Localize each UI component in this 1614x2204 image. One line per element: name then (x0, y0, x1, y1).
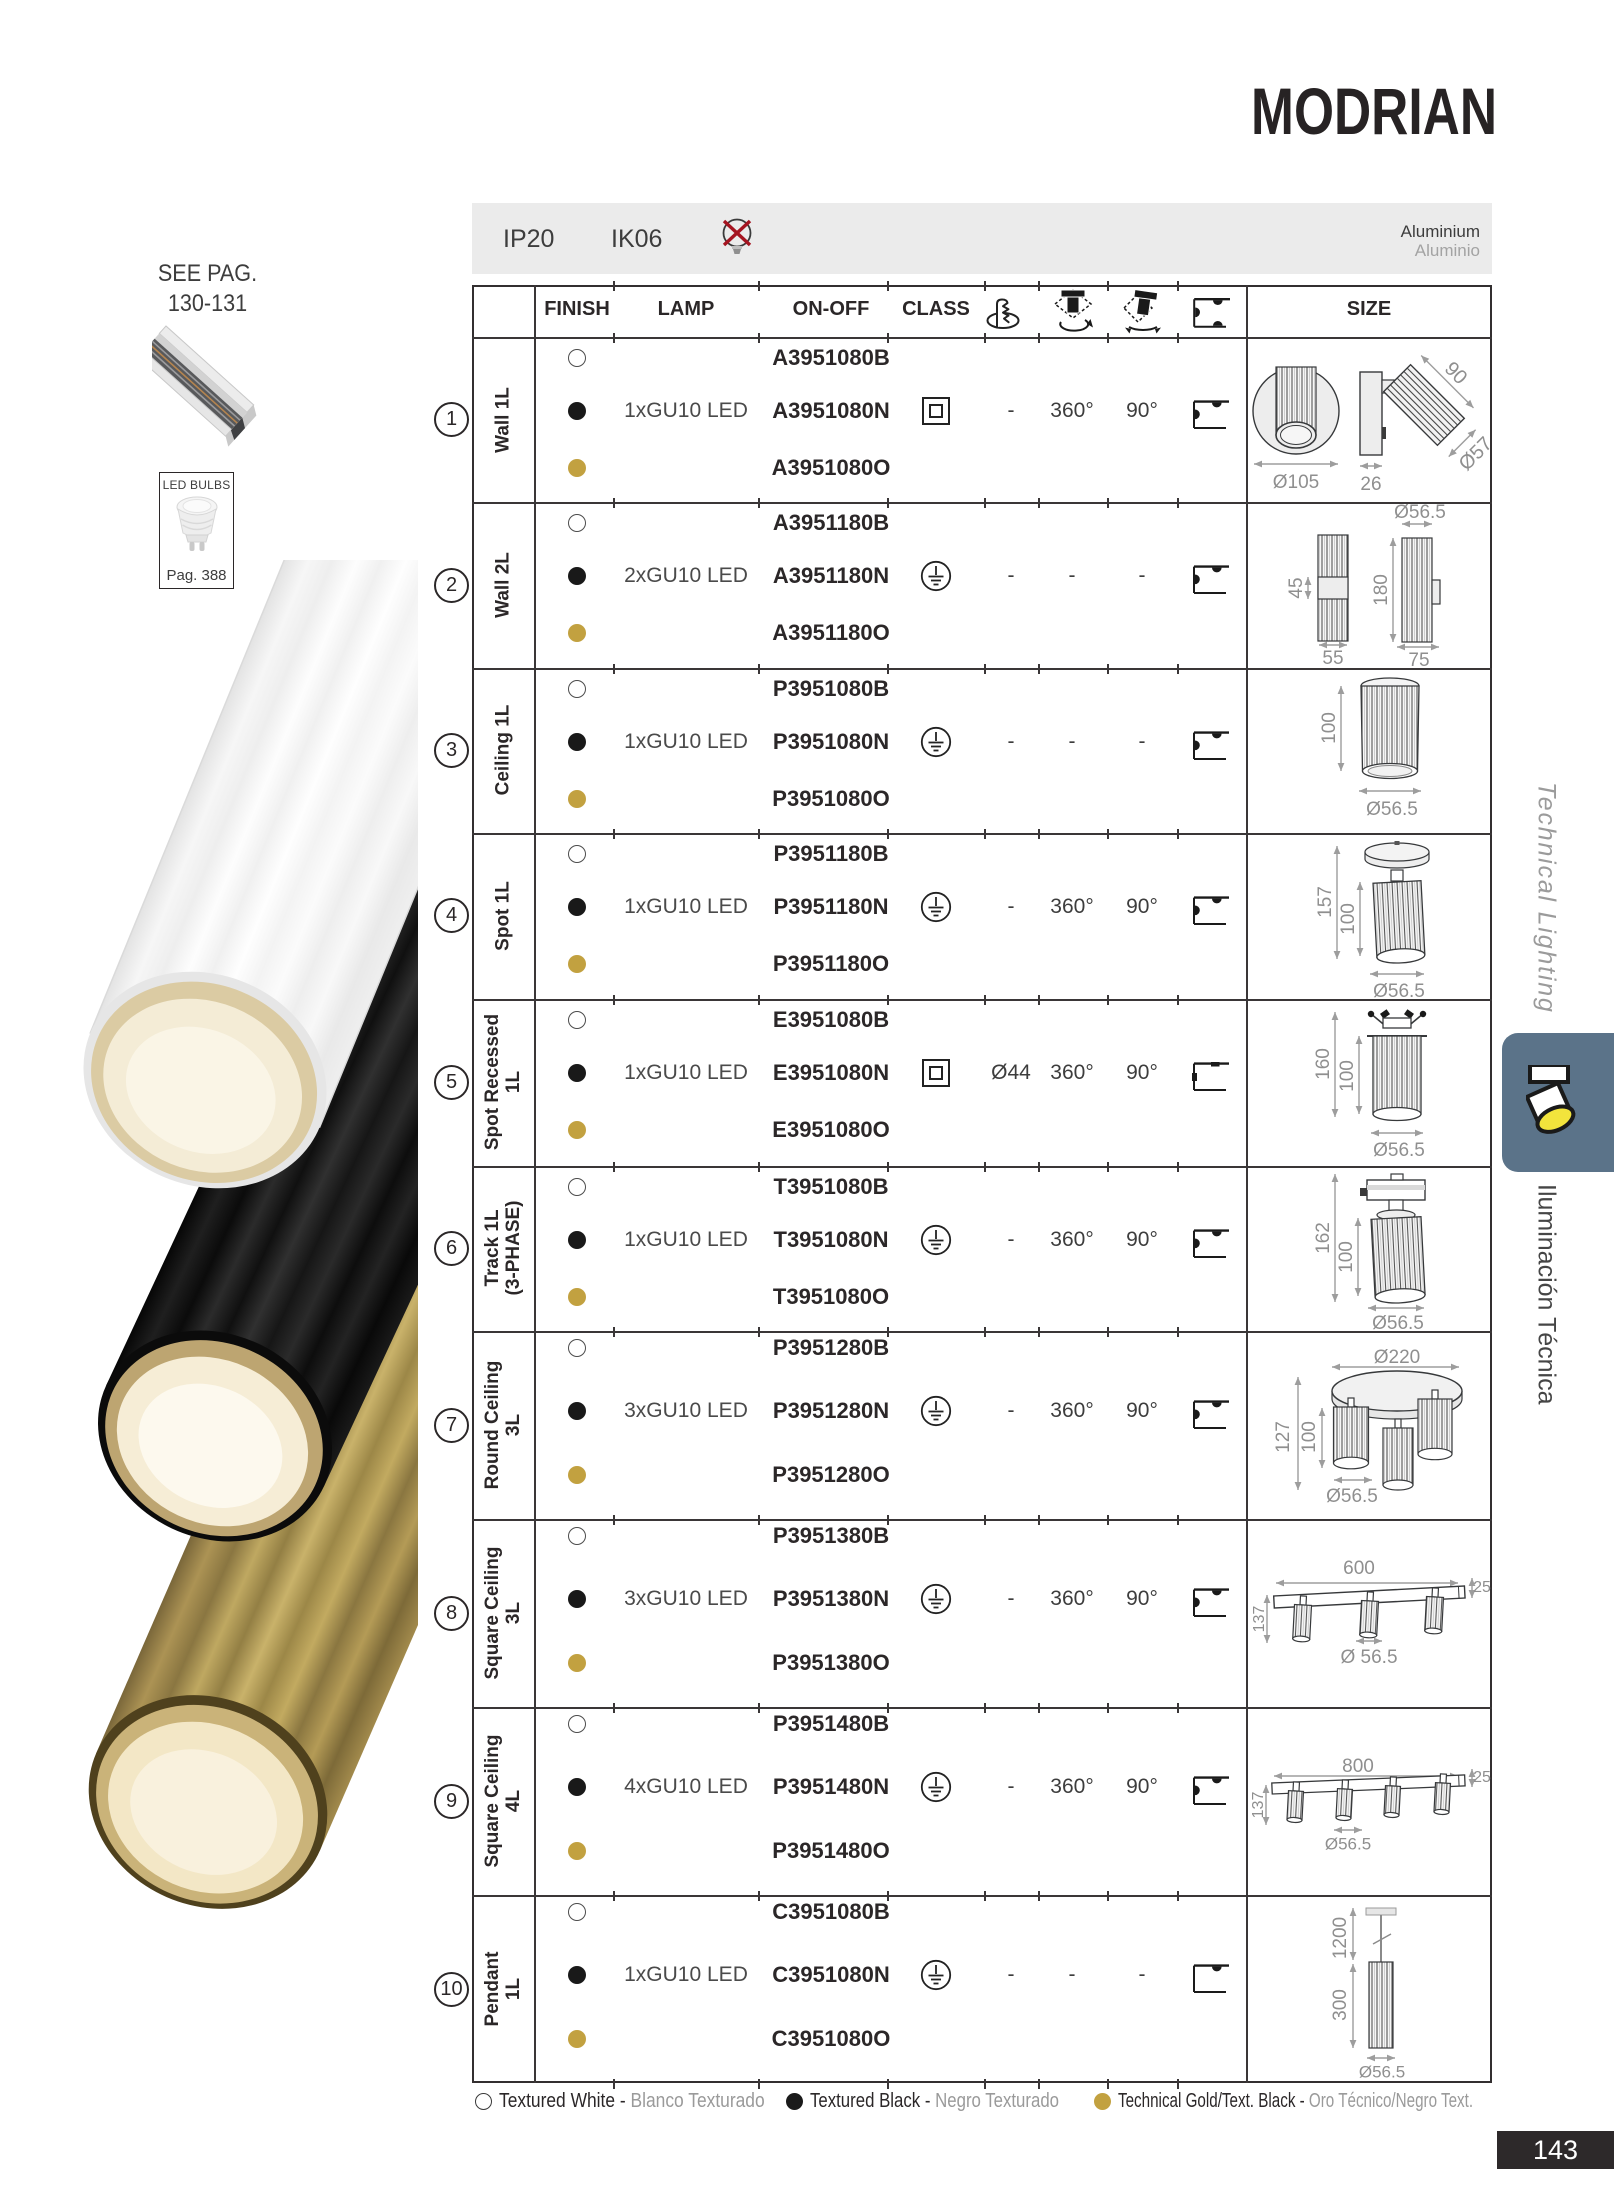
svg-text:100: 100 (1319, 712, 1340, 744)
svg-text:25: 25 (1473, 1579, 1491, 1596)
svg-text:100: 100 (1338, 903, 1359, 935)
svg-text:Ø56.5: Ø56.5 (1359, 2062, 1405, 2081)
svg-text:157: 157 (1315, 886, 1336, 918)
svg-text:127: 127 (1273, 1421, 1294, 1453)
svg-text:137: 137 (1251, 1606, 1268, 1633)
svg-text:180: 180 (1371, 574, 1392, 606)
svg-text:Ø220: Ø220 (1374, 1347, 1420, 1368)
svg-text:Ø56.5: Ø56.5 (1325, 1834, 1371, 1853)
svg-text:Ø56.5: Ø56.5 (1394, 502, 1446, 523)
svg-text:26: 26 (1360, 474, 1381, 495)
svg-text:300: 300 (1330, 1989, 1351, 2021)
svg-text:25: 25 (1473, 1769, 1491, 1786)
svg-text:600: 600 (1343, 1558, 1375, 1579)
svg-text:1200: 1200 (1330, 1917, 1351, 1959)
svg-text:45: 45 (1286, 577, 1307, 598)
svg-text:Ø56.5: Ø56.5 (1366, 799, 1418, 820)
svg-text:160: 160 (1313, 1048, 1334, 1080)
svg-text:Ø56.5: Ø56.5 (1372, 1313, 1424, 1334)
svg-text:90: 90 (1440, 358, 1471, 389)
svg-text:Ø56.5: Ø56.5 (1326, 1486, 1378, 1507)
svg-text:Ø56.5: Ø56.5 (1373, 1140, 1425, 1161)
svg-text:Ø105: Ø105 (1273, 472, 1319, 493)
svg-text:100: 100 (1299, 1421, 1320, 1453)
svg-text:Ø 56.5: Ø 56.5 (1340, 1647, 1397, 1668)
svg-text:800: 800 (1342, 1756, 1374, 1777)
svg-text:Ø57: Ø57 (1455, 433, 1492, 475)
svg-text:162: 162 (1313, 1222, 1334, 1254)
svg-text:75: 75 (1408, 650, 1429, 671)
svg-text:100: 100 (1336, 1241, 1357, 1273)
svg-text:100: 100 (1337, 1060, 1358, 1092)
svg-text:Ø56.5: Ø56.5 (1373, 981, 1425, 1002)
svg-text:137: 137 (1250, 1792, 1267, 1819)
svg-text:55: 55 (1322, 648, 1343, 669)
